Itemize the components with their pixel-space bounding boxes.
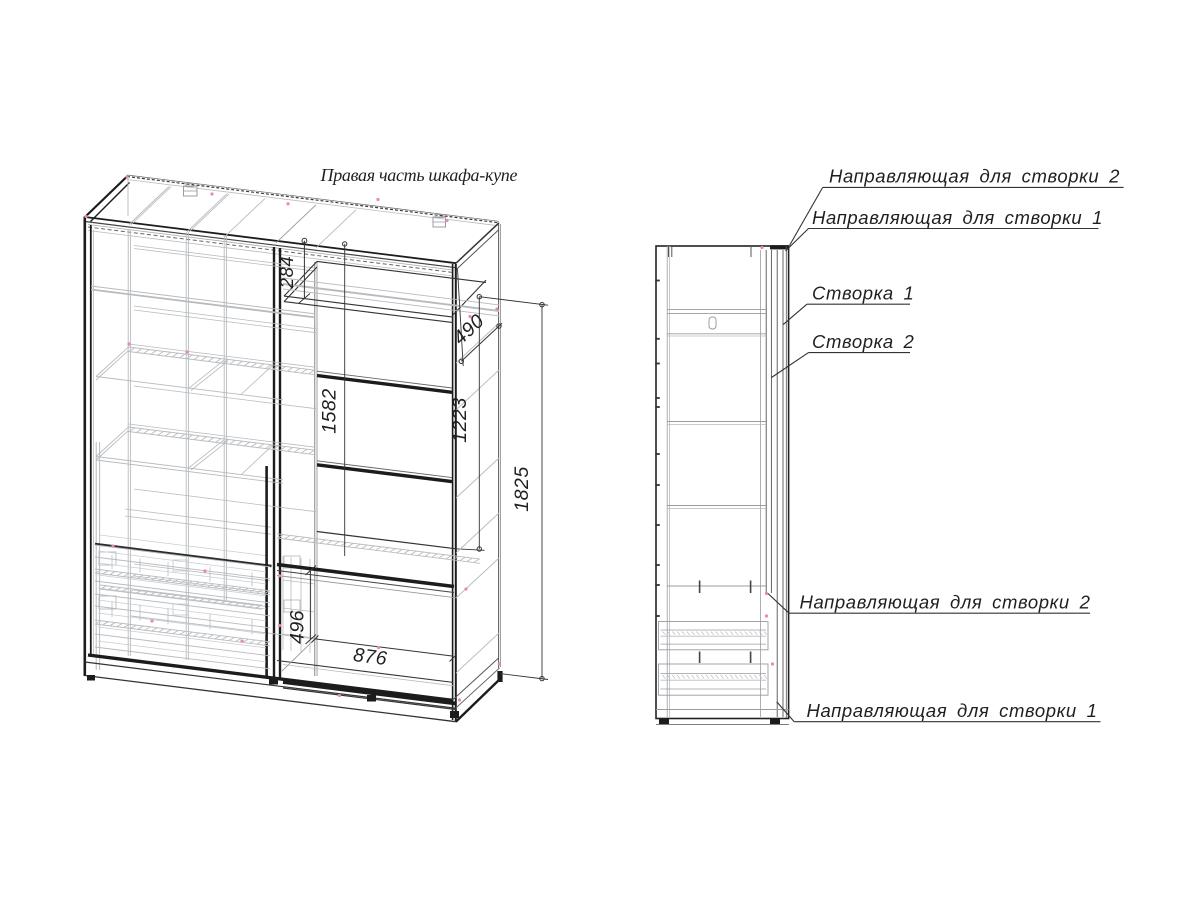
svg-text:Створка 1: Створка 1	[812, 283, 914, 304]
svg-text:496: 496	[287, 610, 309, 644]
svg-text:Направляющая для створки 1: Направляющая для створки 1	[812, 207, 1103, 228]
svg-text:Направляющая для створки 2: Направляющая для створки 2	[829, 166, 1120, 187]
svg-text:Направляющая для створки 2: Направляющая для створки 2	[800, 592, 1091, 613]
svg-text:Правая часть шкафа-купе: Правая часть шкафа-купе	[320, 165, 518, 185]
svg-text:876: 876	[352, 644, 388, 670]
svg-text:Направляющая для створки 1: Направляющая для створки 1	[807, 700, 1098, 721]
svg-text:284: 284	[276, 256, 297, 289]
svg-text:Створка 2: Створка 2	[812, 331, 915, 352]
svg-text:1825: 1825	[511, 466, 533, 511]
svg-text:1223: 1223	[449, 397, 471, 442]
svg-text:1582: 1582	[319, 388, 341, 433]
